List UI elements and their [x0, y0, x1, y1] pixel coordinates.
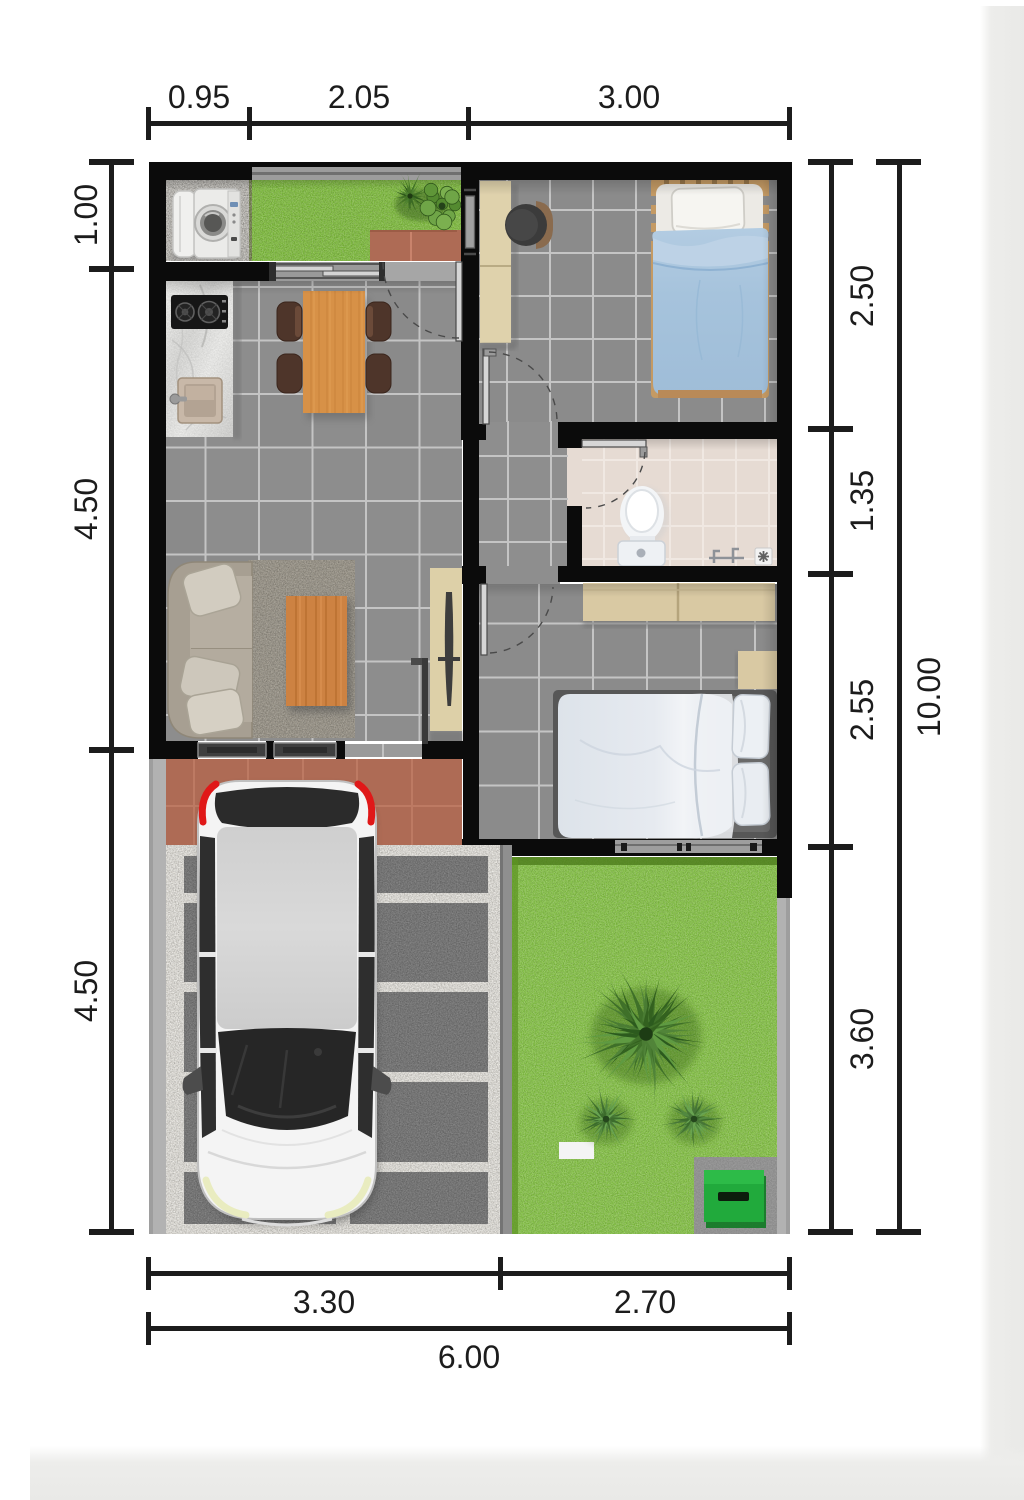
svg-text:4.50: 4.50 — [68, 478, 104, 540]
svg-text:2.50: 2.50 — [844, 265, 880, 327]
svg-text:1.00: 1.00 — [68, 184, 104, 246]
svg-text:0.95: 0.95 — [168, 79, 230, 115]
svg-text:6.00: 6.00 — [438, 1339, 500, 1375]
svg-text:3.60: 3.60 — [844, 1008, 880, 1070]
svg-text:2.05: 2.05 — [328, 79, 390, 115]
svg-text:3.30: 3.30 — [293, 1284, 355, 1320]
svg-text:2.55: 2.55 — [844, 679, 880, 741]
svg-text:4.50: 4.50 — [68, 960, 104, 1022]
svg-text:1.35: 1.35 — [844, 470, 880, 532]
svg-text:3.00: 3.00 — [598, 79, 660, 115]
svg-text:2.70: 2.70 — [614, 1284, 676, 1320]
svg-text:10.00: 10.00 — [911, 657, 947, 737]
